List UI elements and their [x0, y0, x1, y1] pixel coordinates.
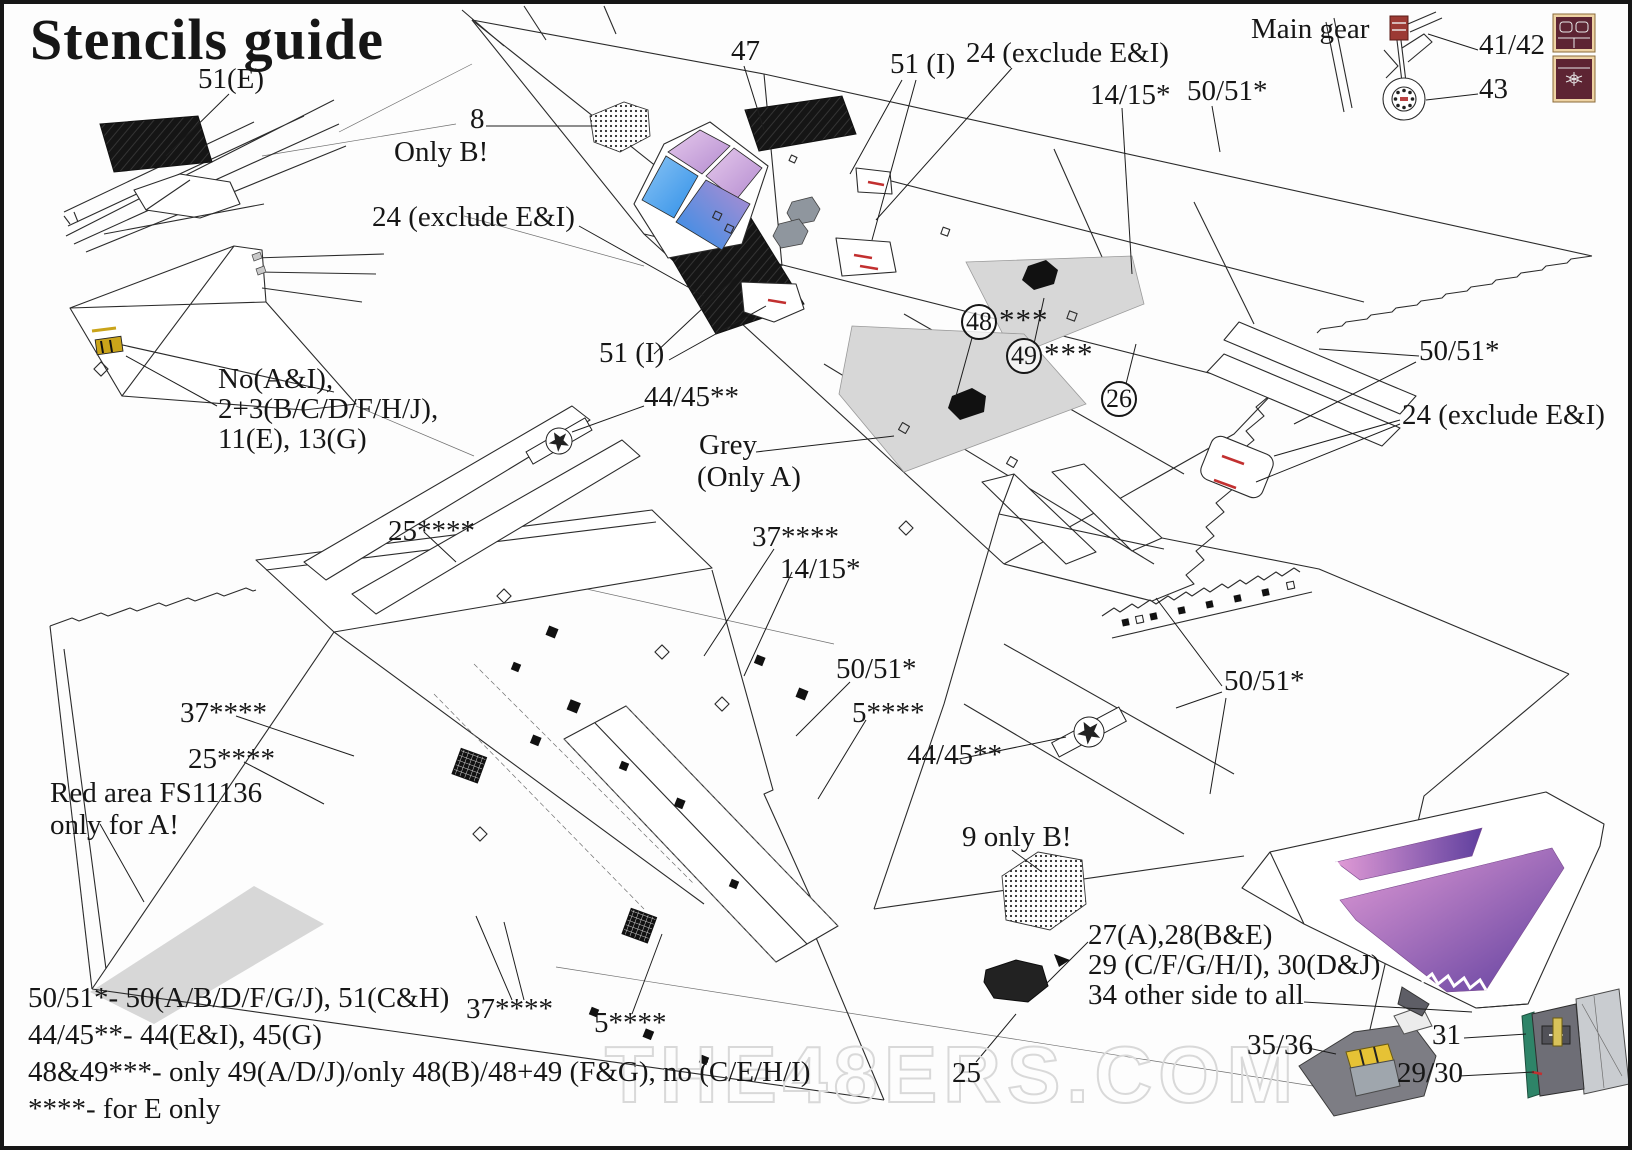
- legend-block: 50/51*- 50(A/B/D/F/G/J), 51(C&H) 44/45**…: [28, 982, 810, 1130]
- callout-5051-right: 50/51*: [1419, 336, 1500, 366]
- asterisks-48: ***: [999, 302, 1049, 338]
- callout-grey-line1: Grey: [699, 430, 757, 460]
- callout-3536: 35/36: [1247, 1030, 1313, 1060]
- star-insignia-right: [1048, 701, 1129, 763]
- callout-4445-right: 44/45**: [907, 740, 1002, 770]
- callout-4142: 41/42: [1479, 30, 1545, 60]
- callout-9-only-b: 9 only B!: [962, 822, 1072, 852]
- circled-26: 26: [1101, 381, 1137, 417]
- nose-note-line2: 2+3(B/C/D/F/H/J),: [218, 394, 438, 424]
- legend-line-3: 48&49***- only 49(A/D/J)/only 48(B)/48+4…: [28, 1056, 810, 1089]
- legend-line-2: 44/45**- 44(E&I), 45(G): [28, 1019, 810, 1052]
- callout-2930: 29/30: [1397, 1058, 1463, 1088]
- circled-48: 48: [961, 304, 997, 340]
- canopy-inset-drawing: [64, 100, 346, 252]
- side-note-line3: 34 other side to all: [1088, 980, 1304, 1010]
- callout-1415-top: 14/15*: [1090, 80, 1171, 110]
- red-area-note-line1: Red area FS11136: [50, 778, 262, 808]
- callout-37-left: 37****: [180, 698, 267, 728]
- instrument-panel-decals: [1553, 14, 1595, 102]
- callout-51e: 51(E): [198, 64, 264, 94]
- callout-4445-mid: 44/45**: [644, 382, 739, 412]
- asterisks-49: ***: [1044, 336, 1094, 372]
- callout-1415-mid: 14/15*: [780, 554, 861, 584]
- callout-main-gear: Main gear: [1251, 14, 1369, 44]
- nozzle-drawing: [1299, 987, 1436, 1116]
- console-drawing: [1522, 989, 1629, 1098]
- callout-only-b: Only B!: [394, 137, 488, 167]
- callout-25-top: 25****: [388, 516, 475, 546]
- callout-51i-top: 51 (I): [890, 49, 955, 79]
- callout-8: 8: [470, 104, 485, 134]
- callout-5051-top: 50/51*: [1187, 76, 1268, 106]
- nose-note-line1: No(A&I),: [218, 364, 333, 394]
- callout-24-top: 24 (exclude E&I): [966, 38, 1169, 68]
- callout-51i-mid: 51 (I): [599, 338, 664, 368]
- callout-grey-line2: (Only A): [697, 462, 801, 492]
- callout-5051-mid: 50/51*: [836, 654, 917, 684]
- callout-25-left: 25****: [188, 744, 275, 774]
- callout-37-mid: 37****: [752, 522, 839, 552]
- nose-note-line3: 11(E), 13(G): [218, 424, 367, 454]
- callout-5051-far: 50/51*: [1224, 666, 1305, 696]
- circled-49: 49: [1006, 338, 1042, 374]
- legend-line-1: 50/51*- 50(A/B/D/F/G/J), 51(C&H): [28, 982, 810, 1015]
- callout-31: 31: [1432, 1020, 1461, 1050]
- stencils-guide-sheet: THE48ERS.COM Stencils guide 51(E) 47 51 …: [0, 0, 1632, 1150]
- callout-43: 43: [1479, 74, 1508, 104]
- callout-24-right: 24 (exclude E&I): [1402, 400, 1605, 430]
- callout-47: 47: [731, 36, 760, 66]
- callout-25-bottom: 25: [952, 1058, 981, 1088]
- legend-line-4: ****- for E only: [28, 1093, 810, 1126]
- side-note-line2: 29 (C/F/G/H/I), 30(D&J): [1088, 950, 1380, 980]
- callout-5-mid: 5****: [852, 698, 925, 728]
- red-area-note-line2: only for A!: [50, 810, 179, 840]
- callout-24-left: 24 (exclude E&I): [372, 202, 575, 232]
- side-note-line1: 27(A),28(B&E): [1088, 920, 1272, 950]
